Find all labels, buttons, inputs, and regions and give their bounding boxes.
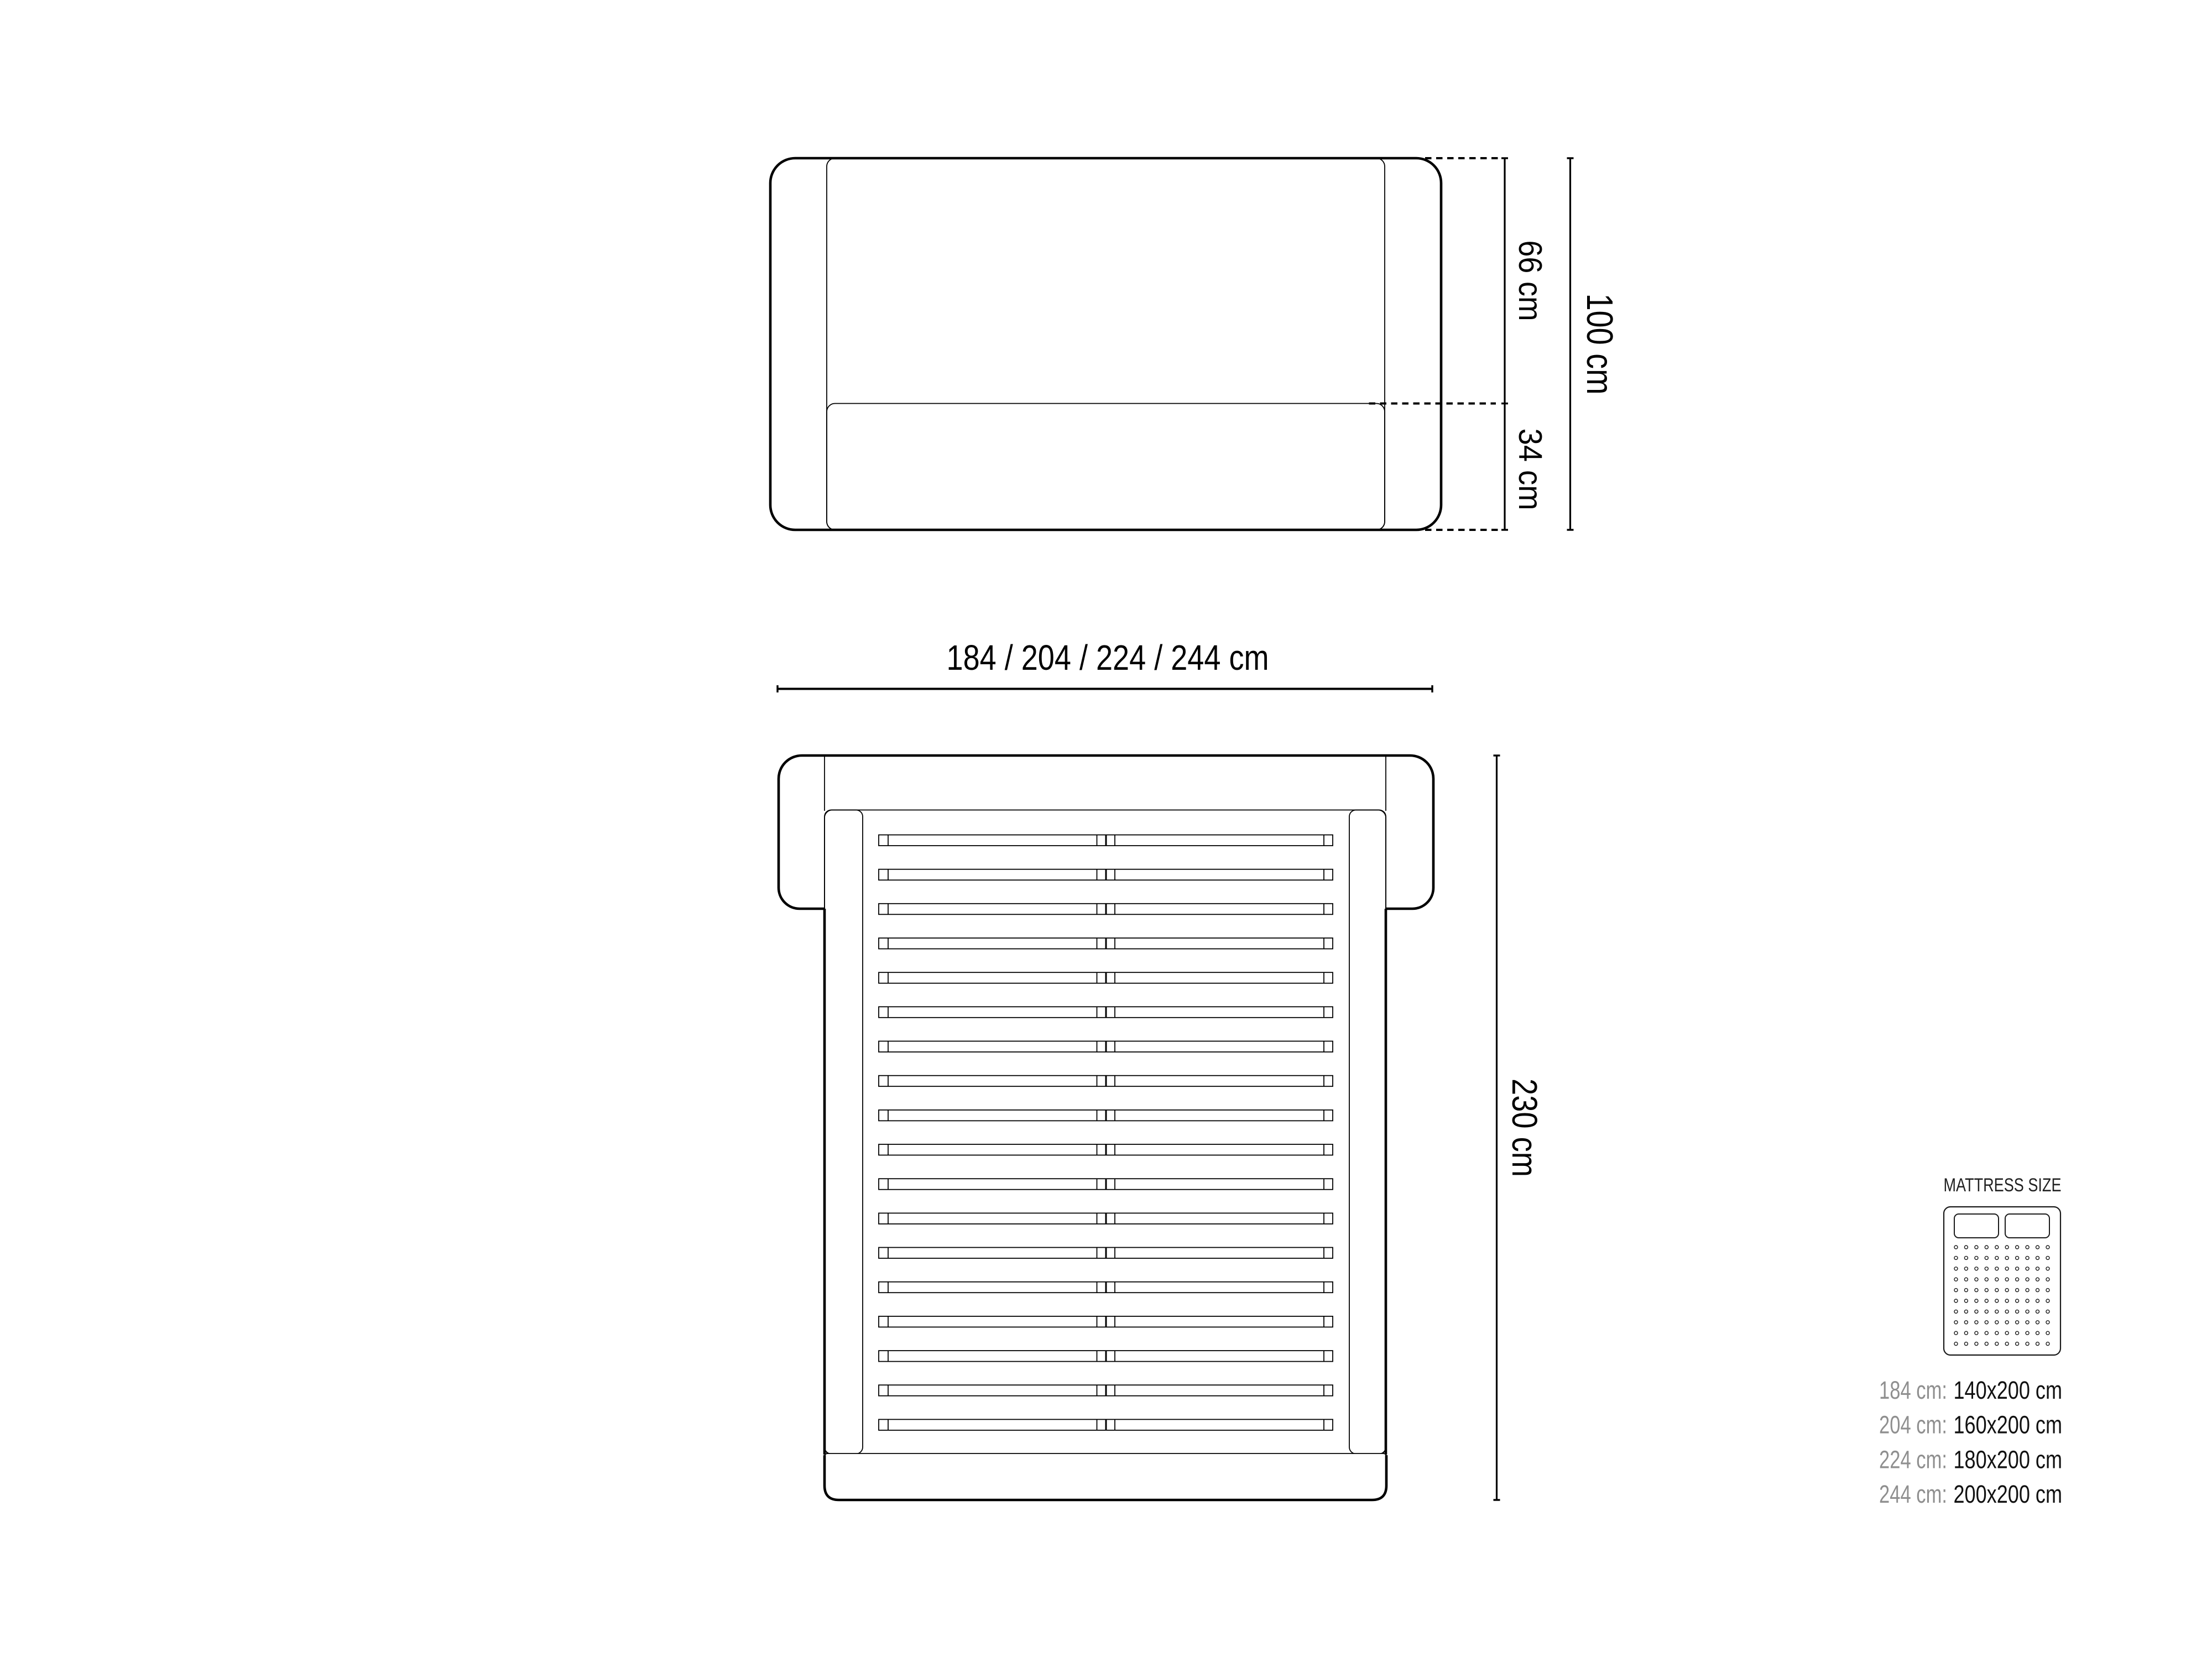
svg-text:34 cm: 34 cm	[1512, 429, 1548, 510]
svg-text:230 cm: 230 cm	[1505, 1079, 1545, 1177]
svg-text:MATTRESS SIZE: MATTRESS SIZE	[1944, 1175, 2062, 1196]
svg-text:66 cm: 66 cm	[1512, 241, 1548, 321]
svg-text:200x200 cm: 200x200 cm	[1954, 1480, 2063, 1508]
svg-text:160x200 cm: 160x200 cm	[1954, 1411, 2063, 1439]
svg-text:184 / 204 / 224 / 244 cm: 184 / 204 / 224 / 244 cm	[947, 638, 1269, 678]
svg-text:180x200 cm: 180x200 cm	[1954, 1445, 2063, 1473]
svg-text:224 cm:: 224 cm:	[1879, 1445, 1947, 1473]
svg-text:100 cm: 100 cm	[1579, 294, 1620, 395]
svg-text:204 cm:: 204 cm:	[1879, 1411, 1947, 1439]
svg-text:184 cm:: 184 cm:	[1879, 1376, 1947, 1404]
svg-text:140x200 cm: 140x200 cm	[1954, 1376, 2063, 1404]
svg-text:244 cm:: 244 cm:	[1879, 1480, 1947, 1508]
